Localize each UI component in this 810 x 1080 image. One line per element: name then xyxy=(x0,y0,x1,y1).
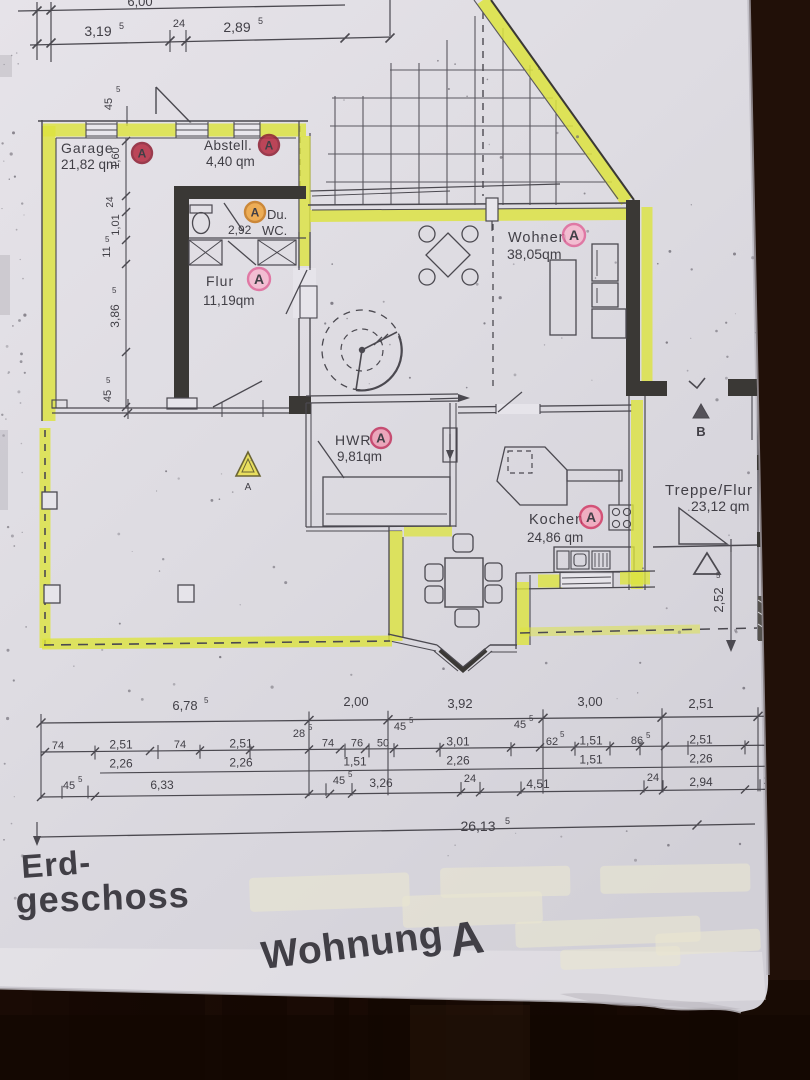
svg-text:24,86 qm: 24,86 qm xyxy=(527,530,583,545)
svg-text:5: 5 xyxy=(78,775,83,784)
svg-text:45: 45 xyxy=(333,775,345,787)
svg-text:6,33: 6,33 xyxy=(150,778,174,792)
svg-text:45: 45 xyxy=(103,98,115,110)
svg-text:74: 74 xyxy=(322,738,334,750)
svg-text:45: 45 xyxy=(102,390,114,402)
svg-text:45: 45 xyxy=(63,780,75,792)
svg-text:2,00: 2,00 xyxy=(343,694,368,709)
svg-text:45: 45 xyxy=(514,719,526,731)
svg-text:5: 5 xyxy=(646,731,651,740)
svg-text:74: 74 xyxy=(52,740,64,752)
svg-text:A: A xyxy=(569,227,579,243)
svg-text:B: B xyxy=(696,424,705,439)
svg-text:4,51: 4,51 xyxy=(526,777,550,791)
svg-text:4,40 qm: 4,40 qm xyxy=(206,154,255,169)
svg-text:5: 5 xyxy=(716,571,721,580)
svg-text:28: 28 xyxy=(293,728,305,740)
svg-text:3,92: 3,92 xyxy=(447,696,472,711)
svg-text:Garage: Garage xyxy=(61,140,114,156)
svg-text:2,51: 2,51 xyxy=(689,733,713,747)
svg-text:A: A xyxy=(138,146,147,160)
svg-text:2,89: 2,89 xyxy=(223,19,250,35)
svg-text:24: 24 xyxy=(464,773,476,785)
svg-text:A: A xyxy=(245,482,252,493)
svg-text:2,26: 2,26 xyxy=(446,754,470,768)
svg-text:1,51: 1,51 xyxy=(579,753,603,767)
svg-text:2,26: 2,26 xyxy=(109,756,133,770)
svg-text:5: 5 xyxy=(105,235,110,244)
svg-text:5: 5 xyxy=(119,21,124,31)
svg-text:6,00: 6,00 xyxy=(127,0,152,9)
svg-text:1,51: 1,51 xyxy=(579,734,603,748)
svg-text:24: 24 xyxy=(173,18,185,30)
svg-text:1,01: 1,01 xyxy=(110,214,122,235)
svg-text:2,26: 2,26 xyxy=(229,755,253,769)
svg-text:WC.: WC. xyxy=(262,223,287,238)
svg-text:23,12 qm: 23,12 qm xyxy=(691,498,749,514)
svg-text:24: 24 xyxy=(647,772,659,784)
svg-text:5: 5 xyxy=(505,816,510,826)
svg-text:A: A xyxy=(265,138,274,152)
svg-text:2,51: 2,51 xyxy=(229,736,253,750)
svg-text:Treppe/Flur: Treppe/Flur xyxy=(665,482,753,499)
svg-text:5: 5 xyxy=(116,85,121,94)
svg-text:3,86: 3,86 xyxy=(108,304,122,328)
svg-text:Kochen: Kochen xyxy=(529,512,584,528)
svg-text:1,51: 1,51 xyxy=(343,754,367,768)
svg-text:Abstell.: Abstell. xyxy=(204,138,252,153)
svg-text:geschoss: geschoss xyxy=(15,874,190,921)
svg-text:2,51: 2,51 xyxy=(688,696,713,711)
svg-text:A: A xyxy=(254,271,264,287)
svg-text:3,26: 3,26 xyxy=(369,776,393,790)
svg-text:Wohnen: Wohnen xyxy=(508,230,568,246)
svg-text:76: 76 xyxy=(351,737,363,749)
svg-text:5: 5 xyxy=(529,714,534,723)
svg-text:6,78: 6,78 xyxy=(172,698,197,713)
svg-text:3,19: 3,19 xyxy=(84,23,111,39)
svg-text:11,19qm: 11,19qm xyxy=(203,293,255,308)
svg-text:A: A xyxy=(251,205,260,219)
svg-text:11: 11 xyxy=(101,246,113,257)
svg-text:9,81qm: 9,81qm xyxy=(337,449,382,464)
svg-text:21,82 qm: 21,82 qm xyxy=(61,157,117,172)
svg-text:A: A xyxy=(586,509,596,525)
svg-text:2,26: 2,26 xyxy=(689,752,713,766)
svg-text:2,52: 2,52 xyxy=(711,587,726,612)
svg-text:2,94: 2,94 xyxy=(689,775,713,789)
svg-text:74: 74 xyxy=(174,739,186,751)
svg-text:50: 50 xyxy=(377,737,389,749)
svg-text:5: 5 xyxy=(409,716,414,725)
svg-text:2,92: 2,92 xyxy=(228,223,252,237)
svg-text:A: A xyxy=(376,431,386,446)
svg-text:Flur: Flur xyxy=(206,273,234,289)
svg-text:Du.: Du. xyxy=(267,207,287,222)
svg-text:5: 5 xyxy=(258,16,263,26)
svg-text:5: 5 xyxy=(348,770,353,779)
svg-text:3,01: 3,01 xyxy=(446,735,470,749)
svg-text:HWR: HWR xyxy=(335,432,371,448)
svg-text:5: 5 xyxy=(560,730,565,739)
svg-text:1,60: 1,60 xyxy=(110,147,122,168)
svg-text:3,00: 3,00 xyxy=(577,694,602,709)
svg-text:24: 24 xyxy=(105,196,116,208)
svg-text:5: 5 xyxy=(112,286,117,295)
svg-text:5: 5 xyxy=(204,696,209,705)
svg-text:62: 62 xyxy=(546,736,558,748)
svg-text:5: 5 xyxy=(106,376,111,385)
svg-text:2,51: 2,51 xyxy=(109,737,133,751)
svg-text:26,13: 26,13 xyxy=(460,818,495,834)
svg-text:45: 45 xyxy=(394,721,406,733)
